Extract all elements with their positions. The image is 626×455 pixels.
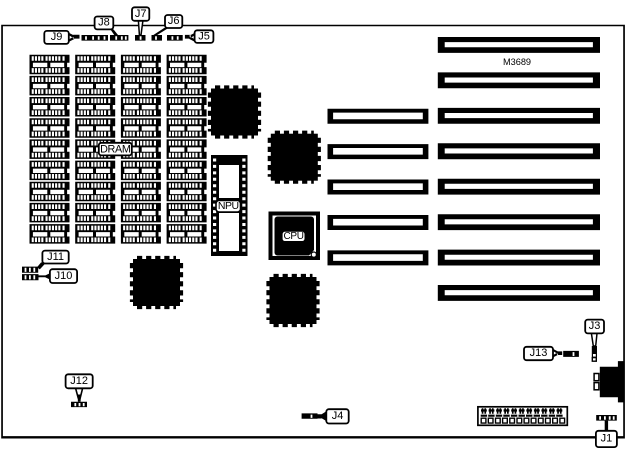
svg-text:J12: J12 [70,375,88,387]
svg-text:J1: J1 [601,433,613,445]
svg-text:J8: J8 [98,17,110,29]
svg-text:J5: J5 [198,30,210,42]
svg-text:M3689: M3689 [503,57,531,67]
svg-text:CPU: CPU [283,231,303,242]
svg-text:J4: J4 [332,410,344,422]
svg-text:J13: J13 [530,347,548,359]
svg-text:J7: J7 [135,8,147,20]
svg-text:DRAM: DRAM [100,144,131,156]
svg-text:J11: J11 [47,251,64,263]
svg-text:NPU: NPU [218,200,239,212]
svg-text:J3: J3 [589,320,601,332]
svg-text:J9: J9 [51,31,63,43]
svg-text:J6: J6 [168,15,180,27]
svg-text:J10: J10 [55,270,73,282]
